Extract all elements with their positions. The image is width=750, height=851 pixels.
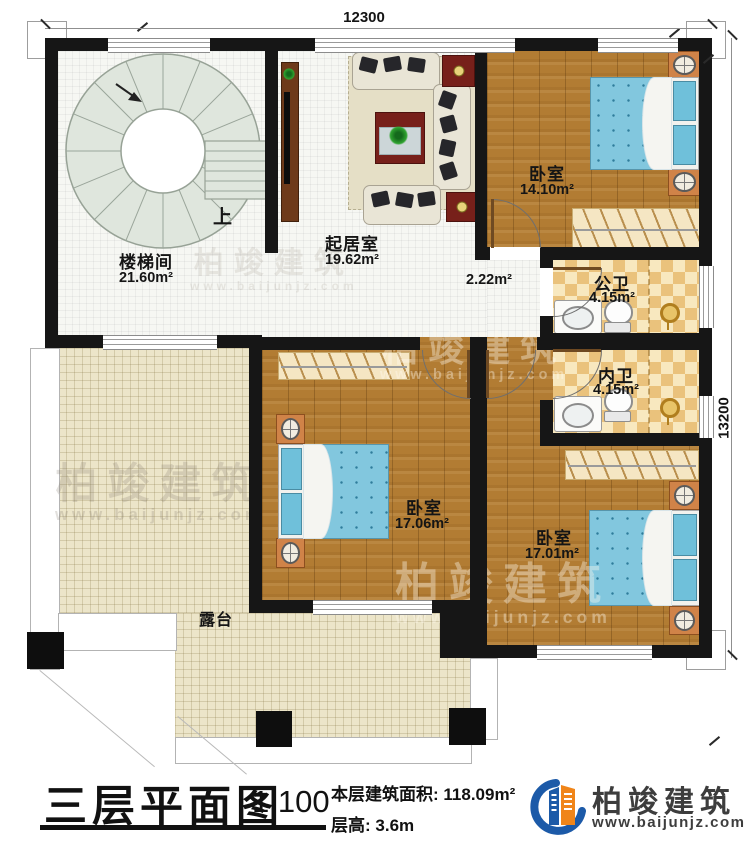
lamp <box>453 66 464 77</box>
wall <box>540 433 699 446</box>
door-leaf <box>491 199 494 248</box>
bed-cushion <box>281 493 302 535</box>
stair-direction-label: 上 <box>213 202 233 229</box>
dimension-tick <box>727 650 738 661</box>
wardrobe-rod <box>575 229 698 231</box>
side-table <box>446 192 477 222</box>
door-leaf <box>486 350 489 398</box>
company-website: www.baijunjz.com <box>592 814 745 831</box>
bed-sheet <box>642 77 672 170</box>
dimension-height: 13200 <box>716 392 733 444</box>
room-label-terrace: 露台 <box>199 606 233 630</box>
wall <box>540 247 712 260</box>
sink-basin <box>562 403 594 428</box>
nightstand <box>276 538 305 568</box>
corner-tick <box>137 22 148 32</box>
nightstand <box>668 51 701 79</box>
tv <box>284 92 290 184</box>
sliding-door <box>313 600 432 615</box>
nightstand <box>276 414 305 444</box>
window <box>108 38 210 53</box>
floor-area-line: 本层建筑面积: 118.09m² <box>331 780 515 805</box>
lamp <box>674 485 695 506</box>
dimension-line-top <box>45 28 712 29</box>
window <box>103 335 217 350</box>
nightstand <box>669 481 700 510</box>
lamp <box>673 172 696 192</box>
room-area-public-bath: 4.15m² <box>589 290 635 306</box>
nightstand <box>669 606 700 635</box>
bed-cushion <box>673 81 696 121</box>
corner-tick <box>709 736 720 746</box>
wall <box>652 645 712 658</box>
terrace-parapet <box>58 613 177 651</box>
dimension-width: 12300 <box>338 9 390 26</box>
side-table <box>442 55 475 87</box>
parapet-edge-line <box>39 670 155 767</box>
pillow <box>407 57 426 73</box>
lamp <box>456 202 467 213</box>
room-area-living: 19.62m² <box>325 252 379 268</box>
room-area-hallway: 2.22m² <box>466 272 512 288</box>
wall <box>432 600 470 613</box>
wall <box>487 645 537 658</box>
bed-cushion <box>673 559 697 601</box>
wall <box>249 337 262 613</box>
toilet-tank <box>604 322 631 333</box>
shower-partition <box>648 260 650 333</box>
wall <box>540 333 712 350</box>
room-area-stairwell: 21.60m² <box>119 270 173 286</box>
bed-sheet <box>303 444 333 539</box>
terrace-column <box>449 708 486 745</box>
company-logo-icon <box>526 778 586 838</box>
room-area-private-bath: 4.15m² <box>593 382 639 398</box>
bed-cushion <box>673 125 696 165</box>
room-area-bedroom-tr: 14.10m² <box>520 182 574 198</box>
wall <box>540 260 553 268</box>
wardrobe <box>278 352 410 380</box>
shower-partition <box>648 350 650 433</box>
floor-plan-page: 柏竣建筑 www.baijunjz.com 柏竣建筑 www.baijunjz.… <box>0 0 750 851</box>
room-area-bedroom-br: 17.01m² <box>525 546 579 562</box>
corner-tick <box>669 28 680 38</box>
door-leaf <box>553 349 601 352</box>
floor-height-label: 层高: <box>331 816 371 835</box>
lamp <box>281 418 300 440</box>
shower-head <box>660 303 680 323</box>
terrace-column <box>27 632 64 669</box>
wardrobe-rod <box>568 465 696 467</box>
bed-sheet <box>642 510 672 606</box>
spiral-staircase <box>56 46 274 261</box>
wall <box>249 337 420 350</box>
wardrobe <box>572 208 701 249</box>
floor-height-value: 3.6m <box>375 816 414 835</box>
window <box>315 38 515 53</box>
wall <box>537 337 553 350</box>
lamp <box>673 55 696 75</box>
terrace-parapet <box>30 348 60 670</box>
wall <box>475 51 487 247</box>
terrace-floor <box>175 613 470 737</box>
bed-cushion <box>673 514 697 556</box>
lamp <box>281 542 300 564</box>
title-underline <box>40 825 326 830</box>
room-area-bedroom-mid: 17.06m² <box>395 516 449 532</box>
window <box>699 396 714 438</box>
terrace-column <box>256 711 292 747</box>
wall <box>262 600 313 613</box>
wall <box>475 247 490 260</box>
floor-height-line: 层高: 3.6m <box>331 811 414 836</box>
window <box>699 266 714 328</box>
dimension-line-right <box>731 38 732 658</box>
plant <box>389 126 408 145</box>
bed-cushion <box>281 448 302 490</box>
pillow <box>383 56 402 73</box>
door-leaf <box>467 350 470 398</box>
wall <box>265 51 278 253</box>
plant <box>283 68 295 80</box>
wall <box>440 613 470 658</box>
window <box>537 645 652 660</box>
lamp <box>674 610 695 631</box>
window <box>598 38 678 53</box>
nightstand <box>668 168 701 196</box>
wardrobe <box>565 450 699 480</box>
wardrobe-rod <box>281 366 407 368</box>
floor-area-value: 118.09m² <box>443 785 515 804</box>
wall <box>45 335 103 348</box>
dimension-tick <box>727 30 738 41</box>
terrace-floor <box>58 348 249 613</box>
pillow <box>417 191 436 207</box>
floor-area-label: 本层建筑面积: <box>331 785 439 804</box>
plan-scale: 1:100 <box>252 784 330 820</box>
wall <box>470 337 487 658</box>
pillow <box>395 192 414 209</box>
toilet-tank <box>604 411 631 422</box>
shower-head <box>660 398 680 418</box>
wall <box>45 38 58 348</box>
